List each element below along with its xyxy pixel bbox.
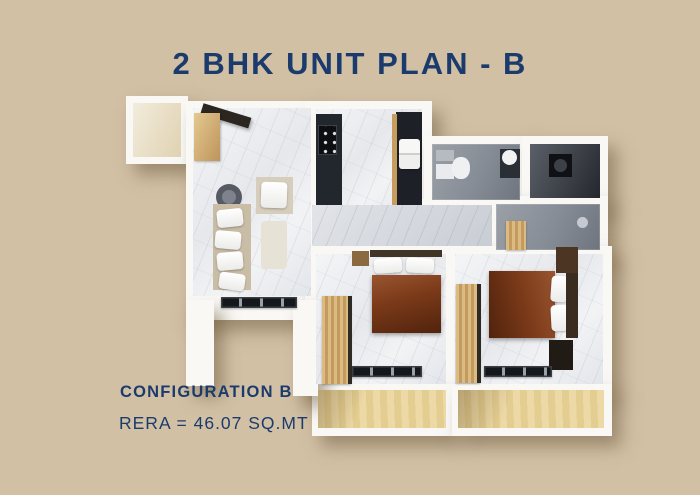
left-wall-column xyxy=(186,300,214,386)
sofa-cushion xyxy=(216,208,244,229)
wardrobe1 xyxy=(322,296,351,384)
armchair-cushion xyxy=(261,182,288,209)
kitchen-tall-cabinet xyxy=(392,114,397,205)
bed2-blanket xyxy=(489,271,555,338)
bed1-pillow xyxy=(406,257,435,273)
wash-basin xyxy=(502,150,517,165)
lobby-floor xyxy=(133,103,181,157)
nightstand xyxy=(352,251,369,266)
configuration-label: CONFIGURATION B xyxy=(120,383,309,402)
wardrobe2-edge xyxy=(477,284,481,383)
toilet-tank xyxy=(436,150,454,161)
bedroom1-window xyxy=(352,366,422,377)
bed2-headboard xyxy=(566,271,578,338)
nightstand xyxy=(549,340,573,370)
flyer-page: 2 BHK UNIT PLAN - B CONFIGURATION B RERA… xyxy=(0,0,700,495)
floorplan xyxy=(0,0,700,495)
sofa-cushion xyxy=(214,230,241,250)
shower-mixer xyxy=(577,217,588,228)
bedroom2-window xyxy=(484,366,552,377)
sofa-cushion xyxy=(218,271,246,291)
lounge-chair xyxy=(261,221,287,269)
bed2-post xyxy=(556,247,578,273)
living-window xyxy=(221,297,297,308)
rera-area-label: RERA = 46.07 SQ.MT xyxy=(119,413,309,434)
pouf-top xyxy=(222,190,236,204)
bed1-pillow xyxy=(374,257,403,274)
sofa-cushion xyxy=(216,251,243,271)
stove xyxy=(318,125,337,155)
washing-machine-door xyxy=(554,159,567,172)
footer-text-block: CONFIGURATION B RERA = 46.07 SQ.MT xyxy=(119,383,309,434)
balcony2-floor xyxy=(458,390,604,428)
bed1-headboard xyxy=(370,250,442,257)
entry-shoe-cabinet xyxy=(194,113,220,161)
passage-floor xyxy=(312,205,492,246)
balcony1-floor xyxy=(318,390,446,428)
toilet-bowl xyxy=(452,157,470,179)
bed1-blanket xyxy=(372,275,441,333)
right-wall-column xyxy=(293,300,318,396)
shower-stool xyxy=(506,221,526,250)
fridge xyxy=(399,139,420,169)
